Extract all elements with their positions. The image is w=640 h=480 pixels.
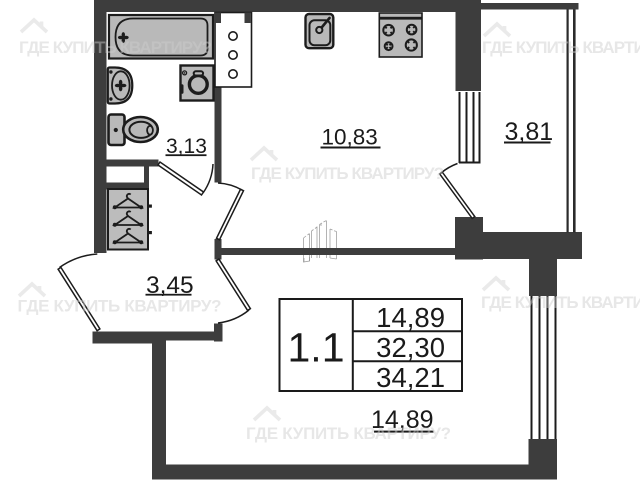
svg-text:14,89: 14,89 <box>376 302 445 333</box>
svg-text:32,30: 32,30 <box>376 332 445 363</box>
svg-text:ГДЕ КУПИТЬ КВАРТИРУ?: ГДЕ КУПИТЬ КВАРТИРУ? <box>481 293 640 312</box>
svg-text:10,83: 10,83 <box>322 125 378 150</box>
svg-text:ГДЕ КУПИТЬ КВАРТИРУ?: ГДЕ КУПИТЬ КВАРТИРУ? <box>19 38 212 57</box>
svg-text:ГДЕ КУПИТЬ КВАРТИРУ?: ГДЕ КУПИТЬ КВАРТИРУ? <box>246 424 451 443</box>
svg-text:ГДЕ КУПИТЬ КВАРТИРУ?: ГДЕ КУПИТЬ КВАРТИРУ? <box>251 164 444 183</box>
svg-text:ГДЕ КУПИТЬ КВАРТИРУ?: ГДЕ КУПИТЬ КВАРТИРУ? <box>482 38 640 57</box>
svg-text:ГДЕ КУПИТЬ КВАРТИРУ?: ГДЕ КУПИТЬ КВАРТИРУ? <box>18 297 222 316</box>
svg-text:1.1: 1.1 <box>288 325 345 371</box>
svg-text:34,21: 34,21 <box>376 362 445 393</box>
